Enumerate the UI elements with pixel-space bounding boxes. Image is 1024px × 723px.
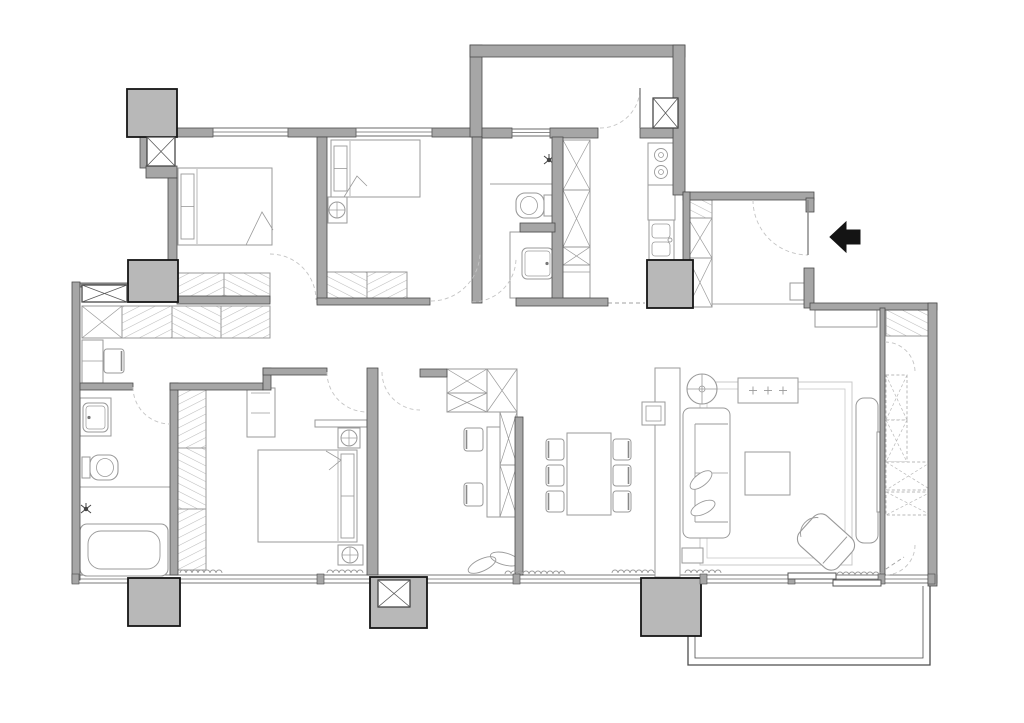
wall (420, 369, 447, 377)
window (512, 129, 550, 136)
bed-bedroom-2 (331, 140, 420, 197)
bathtub (80, 524, 168, 576)
curtain (612, 570, 654, 573)
curtain (685, 570, 721, 573)
curtain (505, 571, 565, 574)
wall (880, 308, 885, 575)
floor-plan-canvas (0, 0, 1024, 723)
wall (683, 192, 814, 200)
lamp (342, 547, 358, 563)
jamb (72, 574, 79, 584)
dining-chair (546, 491, 564, 512)
dining-chair (613, 491, 631, 512)
balcony-railing (688, 586, 930, 665)
wall (367, 368, 378, 575)
sink (83, 403, 108, 432)
wall (472, 137, 482, 303)
wall (515, 417, 523, 575)
wall (146, 166, 177, 178)
door-arc (133, 387, 170, 424)
wall (140, 137, 147, 168)
dresser (247, 388, 275, 437)
shaft (378, 580, 410, 607)
bed-bedroom-1 (178, 168, 273, 245)
desk-chair (464, 428, 483, 451)
door-arc (382, 372, 420, 410)
wall (168, 178, 177, 262)
col (128, 578, 180, 626)
floor-plan (0, 0, 1024, 723)
curtain (837, 572, 879, 575)
wall-niche (642, 402, 665, 425)
coffee-table (745, 452, 790, 495)
wall (806, 198, 814, 212)
wall (810, 303, 937, 310)
entry-arrow-icon (830, 222, 860, 252)
wall (640, 128, 673, 138)
stove (648, 143, 675, 185)
col (647, 260, 693, 308)
study-cabinet (447, 369, 487, 393)
wall (170, 383, 178, 575)
wall (317, 298, 430, 305)
dining-chair (613, 465, 631, 486)
wall (177, 128, 213, 137)
dining-chair (546, 439, 564, 460)
wall (516, 298, 608, 306)
wall (928, 303, 937, 586)
console-table (738, 378, 798, 403)
door-arc (270, 254, 316, 300)
jamb (700, 574, 707, 584)
storage-cabinet (886, 310, 931, 336)
door-arc (327, 372, 367, 412)
wall (72, 282, 80, 580)
wall (520, 223, 555, 232)
storage-cabinet (886, 375, 907, 420)
wall (683, 192, 690, 262)
desk (82, 340, 103, 383)
bed-master-bedroom (258, 450, 357, 542)
desk-chair (464, 483, 483, 506)
shoe-cabinet (688, 218, 712, 258)
hallway-cabinet (82, 306, 122, 338)
shaft (653, 98, 678, 128)
kitchen-tall-cabinet (563, 140, 590, 190)
kitchen-sink (649, 220, 674, 260)
cabinet (815, 310, 877, 327)
side-table (682, 548, 703, 563)
kitchen-tall-cabinet (563, 247, 590, 265)
entry-door-arc (753, 200, 808, 255)
storage-cabinet (886, 462, 931, 490)
wall (470, 45, 482, 137)
wardrobe (327, 272, 367, 300)
storage-cabinet (886, 492, 931, 515)
hallway-wardrobe (172, 306, 221, 338)
sofa (683, 408, 730, 538)
door-arc (600, 88, 640, 128)
shoe-cabinet (688, 200, 712, 218)
study-cabinet (487, 369, 517, 412)
stool (329, 202, 345, 218)
dining-chair (613, 439, 631, 460)
tv-console (856, 398, 878, 543)
wall (177, 296, 270, 304)
toilet (82, 455, 118, 480)
dining-table (567, 433, 611, 515)
study-cabinet (447, 393, 487, 412)
shaft (147, 137, 175, 166)
wardrobe (176, 387, 206, 448)
wall (470, 45, 685, 57)
wall (550, 128, 598, 138)
kitchen-tall-cabinet (563, 190, 590, 247)
dining-chair (546, 465, 564, 486)
partition-console (655, 368, 680, 577)
shaft (82, 285, 127, 302)
tv (877, 432, 880, 512)
wall (288, 128, 356, 137)
lamp (341, 430, 357, 446)
wardrobe (176, 448, 206, 509)
sink (522, 248, 553, 279)
col (128, 260, 178, 302)
plan-layers (72, 45, 937, 665)
jamb (317, 574, 324, 584)
jamb (513, 574, 520, 584)
col (127, 89, 177, 137)
toilet (516, 193, 552, 218)
entry-step (790, 283, 806, 300)
wall (552, 137, 563, 303)
hallway-wardrobe (122, 306, 172, 338)
desk-chair (104, 349, 124, 373)
wall (317, 137, 327, 303)
hallway-wardrobe (221, 306, 270, 338)
desk (487, 427, 500, 517)
study-cabinet (500, 412, 517, 465)
wardrobe (176, 509, 206, 570)
armchair (791, 508, 858, 574)
jamb (928, 574, 935, 584)
col (641, 578, 701, 636)
study-cabinet (500, 465, 517, 517)
wardrobe (367, 272, 407, 300)
wall (263, 368, 327, 375)
shelf (315, 420, 367, 427)
kitchen-counter (648, 185, 675, 220)
storage-cabinet (886, 420, 907, 462)
window (356, 128, 432, 136)
window (213, 128, 288, 136)
wall (432, 128, 472, 137)
plant (466, 549, 521, 576)
round-side-table (687, 374, 717, 404)
curtain (327, 570, 363, 573)
shower-head (81, 503, 91, 513)
cabinet-door-arc (885, 342, 915, 372)
wall (80, 383, 133, 390)
wall (804, 268, 814, 308)
wall (170, 383, 263, 390)
wall (482, 128, 512, 138)
